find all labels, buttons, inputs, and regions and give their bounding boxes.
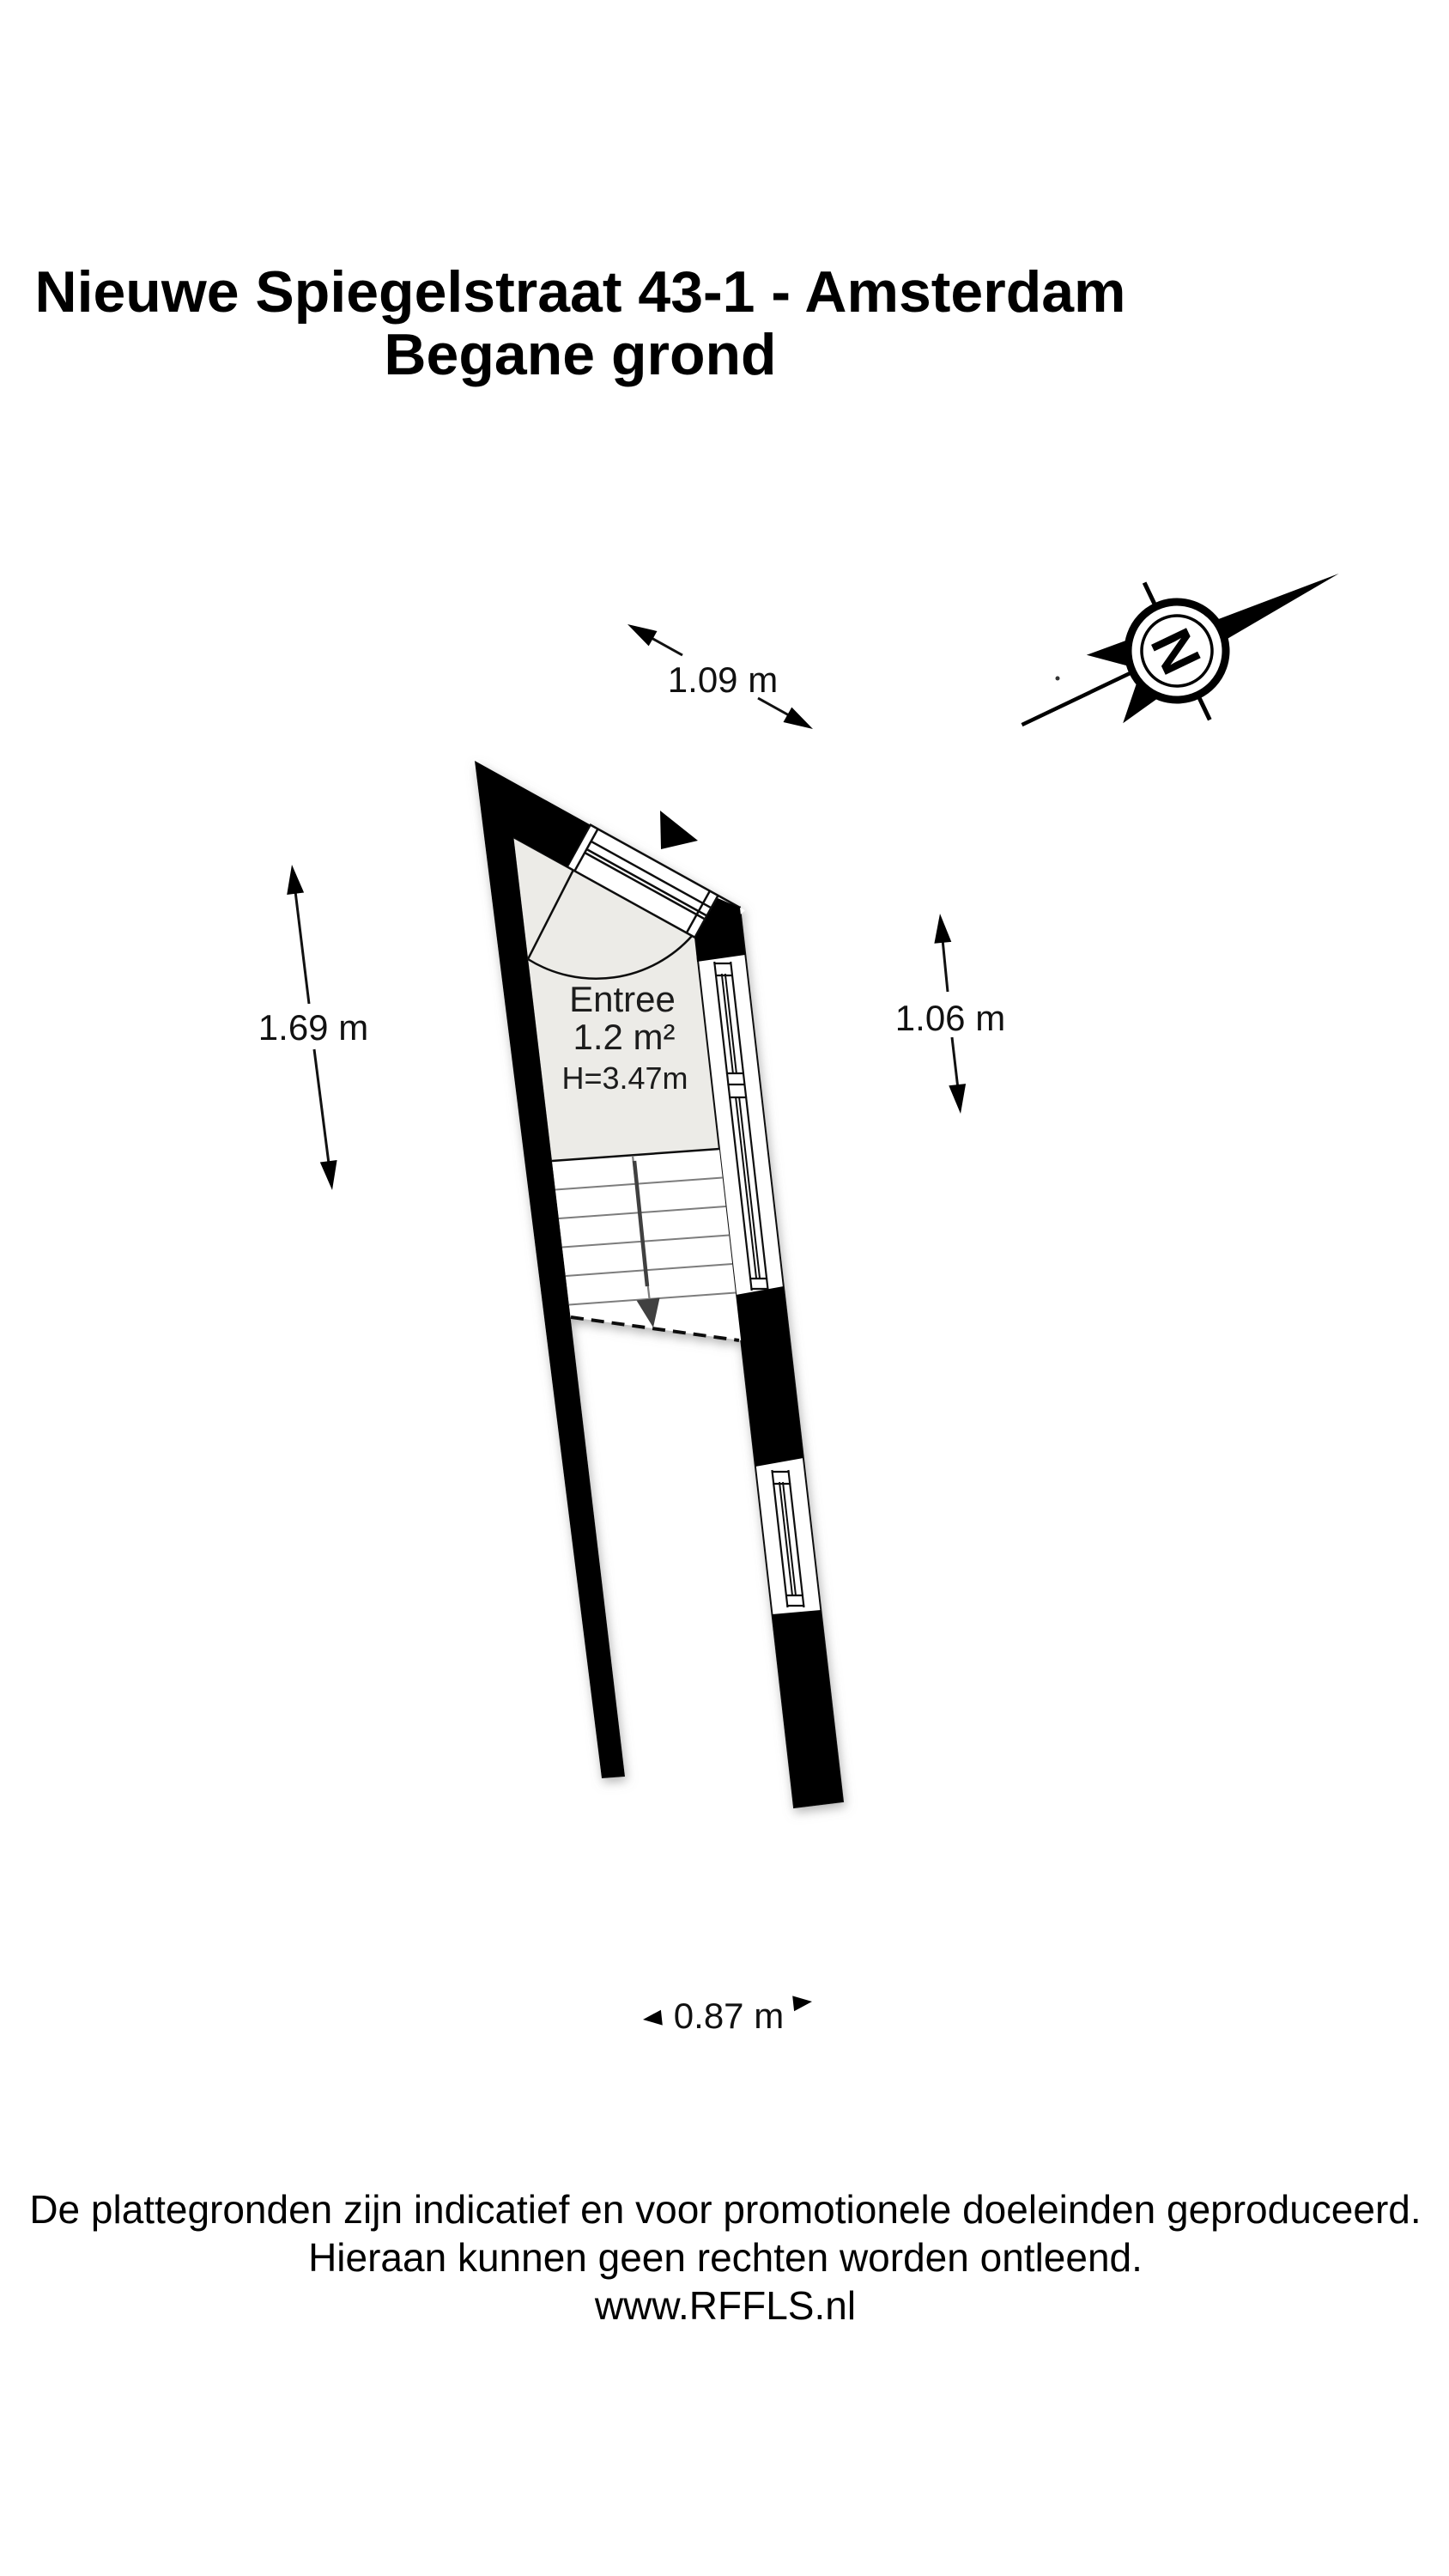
svg-text:Nieuwe Spiegelstraat 43-1 - Am: Nieuwe Spiegelstraat 43-1 - Amsterdam	[34, 259, 1125, 325]
svg-text:Begane grond: Begane grond	[384, 322, 776, 387]
svg-text:Hieraan kunnen geen rechten wo: Hieraan kunnen geen rechten worden ontle…	[308, 2235, 1143, 2280]
svg-text:1.2 m²: 1.2 m²	[573, 1017, 675, 1057]
svg-text:H=3.47m: H=3.47m	[561, 1060, 688, 1096]
svg-text:www.RFFLS.nl: www.RFFLS.nl	[594, 2283, 856, 2328]
svg-text:1.09 m: 1.09 m	[668, 659, 778, 700]
svg-text:Entree: Entree	[569, 979, 676, 1019]
svg-text:De plattegronden zijn indicati: De plattegronden zijn indicatief en voor…	[29, 2187, 1421, 2232]
svg-text:1.06 m: 1.06 m	[895, 998, 1005, 1038]
svg-text:0.87 m: 0.87 m	[674, 1996, 784, 2036]
svg-text:1.69 m: 1.69 m	[258, 1007, 368, 1048]
